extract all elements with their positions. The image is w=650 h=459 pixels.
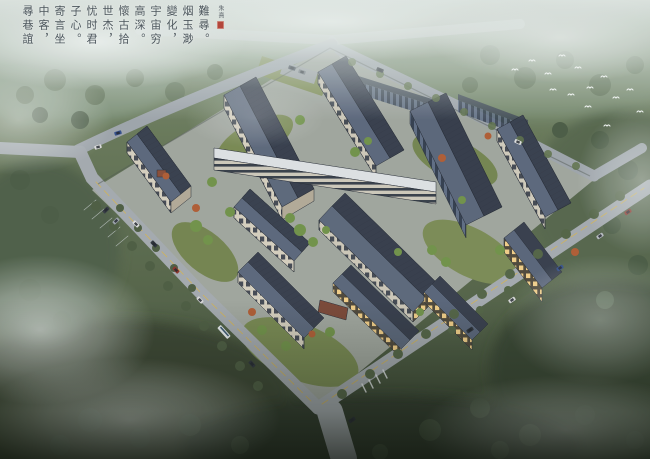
calligraphy-inscription: 尋巷誼 中客， 寄言坐 子心。 忧时君 世杰， 懷古拾 高深。 宇宙穷 變化， … <box>22 5 225 83</box>
calligraphy-column: 宇宙穷 <box>150 5 161 83</box>
calligraphy-column: 懷古拾 <box>118 5 129 83</box>
calligraphy-column: 難尋。 <box>198 5 209 83</box>
calligraphy-column: 高深。 <box>134 5 145 83</box>
calligraphy-column: 烟玉渺 <box>182 5 193 83</box>
artist-signature-block: 朱熹 <box>216 5 225 83</box>
calligraphy-column: 中客， <box>38 5 49 83</box>
bottom-vignette <box>0 300 650 459</box>
calligraphy-column: 變化， <box>166 5 177 83</box>
red-seal-icon <box>217 21 224 29</box>
aerial-rendering: 尋巷誼 中客， 寄言坐 子心。 忧时君 世杰， 懷古拾 高深。 宇宙穷 變化， … <box>0 0 650 459</box>
calligraphy-column: 子心。 <box>70 5 81 83</box>
calligraphy-column: 寄言坐 <box>54 5 65 83</box>
calligraphy-column: 世杰， <box>102 5 113 83</box>
artist-signature: 朱熹 <box>216 5 225 19</box>
calligraphy-column: 忧时君 <box>86 5 97 83</box>
calligraphy-column: 尋巷誼 <box>22 5 33 83</box>
